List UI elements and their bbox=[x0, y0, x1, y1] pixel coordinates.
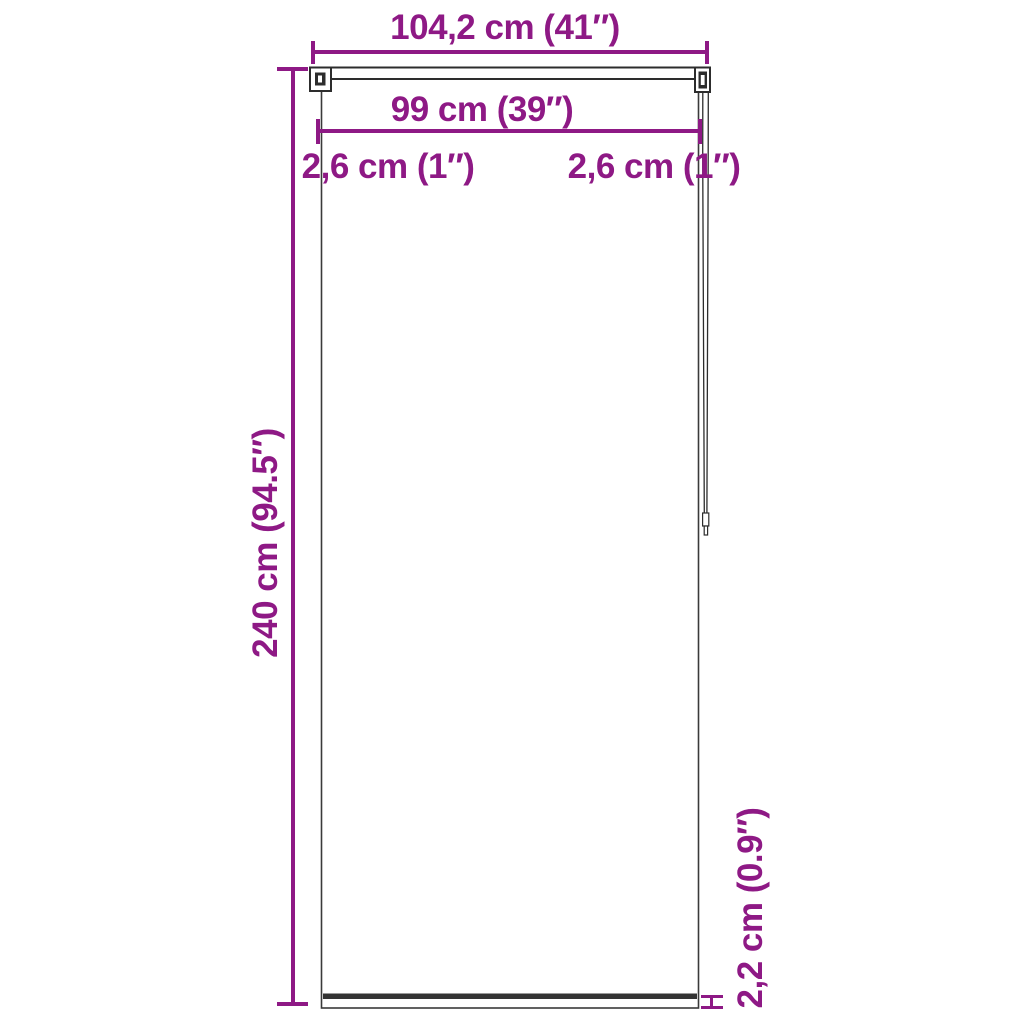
total-width-label: 104,2 cm (41″) bbox=[390, 8, 620, 48]
total-height-tick-bottom bbox=[277, 1002, 308, 1006]
bottom-bar-dimension-connector bbox=[710, 995, 713, 1009]
fabric-width-tick-left bbox=[316, 119, 320, 144]
total-height-label: 240 cm (94.5″) bbox=[246, 428, 286, 658]
left-bracket-slot bbox=[318, 76, 322, 83]
blind-bottom-bar bbox=[323, 994, 697, 1000]
cord-weight bbox=[703, 513, 709, 526]
total-height-dimension-line bbox=[291, 69, 295, 1006]
fabric-width-dimension-line bbox=[319, 129, 700, 133]
right-offset-label: 2,6 cm (1″) bbox=[568, 147, 741, 187]
cord-weight-tip bbox=[704, 526, 707, 535]
left-offset-label: 2,6 cm (1″) bbox=[302, 147, 475, 187]
total-width-tick-right bbox=[705, 41, 709, 64]
right-bracket-slot bbox=[701, 75, 705, 85]
blind-top-rail bbox=[310, 68, 709, 80]
total-height-tick-top bbox=[277, 67, 308, 71]
total-width-dimension-line bbox=[312, 50, 708, 54]
fabric-width-tick-right bbox=[698, 119, 702, 144]
roller-blind-drawing bbox=[0, 0, 1024, 1024]
bottom-bar-height-label: 2,2 cm (0.9″) bbox=[731, 808, 771, 1009]
product-dimension-diagram: 104,2 cm (41″) 99 cm (39″) 2,6 cm (1″) 2… bbox=[0, 0, 1024, 1024]
blind-fabric-panel bbox=[322, 79, 699, 1008]
fabric-width-label: 99 cm (39″) bbox=[391, 90, 573, 130]
total-width-tick-left bbox=[311, 41, 315, 64]
